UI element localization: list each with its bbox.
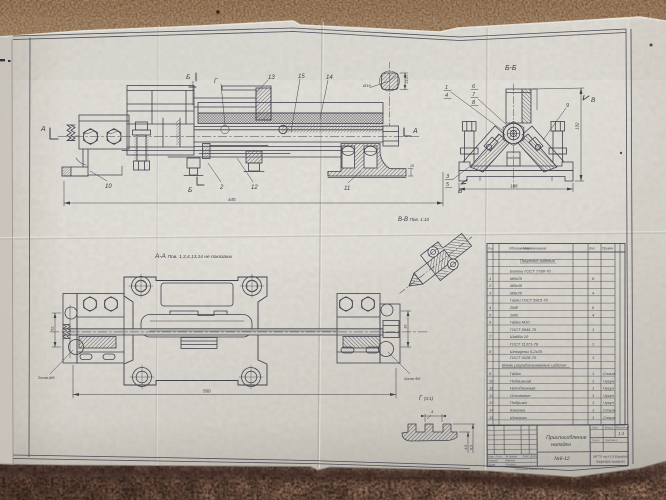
svg-text:Листов 1: Листов 1 xyxy=(604,438,618,442)
svg-text:Ø19: Ø19 xyxy=(362,83,371,88)
svg-text:4,5: 4,5 xyxy=(464,445,468,450)
svg-text:2М6: 2М6 xyxy=(509,312,519,317)
svg-text:1: 1 xyxy=(592,371,594,376)
svg-text:В: В xyxy=(591,97,596,104)
svg-text:A: A xyxy=(40,126,46,133)
svg-text:14: 14 xyxy=(489,408,494,413)
svg-text:Масса: Масса xyxy=(605,425,614,429)
svg-text:148: 148 xyxy=(510,184,518,189)
svg-text:М8х25: М8х25 xyxy=(510,276,523,281)
svg-text:Чугун: Чугун xyxy=(603,400,615,405)
svg-text:15: 15 xyxy=(489,415,494,420)
svg-text:В: В xyxy=(458,188,463,195)
svg-text:52: 52 xyxy=(50,326,55,331)
svg-text:Чугун: Чугун xyxy=(603,378,615,383)
svg-text:10: 10 xyxy=(105,184,112,190)
svg-text:1: 1 xyxy=(592,408,594,413)
svg-text:1: 1 xyxy=(445,85,448,91)
svg-text:Шайба 10: Шайба 10 xyxy=(510,334,529,339)
svg-text:1: 1 xyxy=(592,393,594,398)
svg-text:1: 1 xyxy=(592,400,594,405)
svg-text:2отв.М6: 2отв.М6 xyxy=(37,375,55,380)
svg-text:А-А Пов. 1,3,4,13,14 не показа: А-А Пов. 1,3,4,13,14 не показаны xyxy=(154,253,233,260)
svg-text:1:1: 1:1 xyxy=(618,431,625,436)
svg-text:1: 1 xyxy=(592,386,594,391)
svg-text:2отв.Ф6: 2отв.Ф6 xyxy=(403,376,421,381)
svg-text:1: 1 xyxy=(489,276,491,281)
svg-text:Покупные изделия: Покупные изделия xyxy=(520,258,556,263)
svg-text:Болты ГОСТ 7798-70: Болты ГОСТ 7798-70 xyxy=(510,269,551,274)
svg-text:Б: Б xyxy=(188,187,192,194)
svg-text:ГОСТ 5946-70: ГОСТ 5946-70 xyxy=(510,327,537,332)
svg-text:6,5: 6,5 xyxy=(470,445,474,450)
svg-text:132: 132 xyxy=(575,122,580,130)
svg-text:Примеч.: Примеч. xyxy=(602,247,614,251)
svg-text:№6-12: №6-12 xyxy=(554,456,570,462)
svg-text:Поз: Поз xyxy=(488,247,494,251)
svg-text:13,07: 13,07 xyxy=(405,74,409,84)
svg-text:Дата: Дата xyxy=(529,454,538,458)
svg-text:445: 445 xyxy=(228,197,236,202)
svg-text:Масштаб: Масштаб xyxy=(616,425,630,429)
svg-text:Чугун: Чугун xyxy=(603,393,615,398)
svg-text:ГОСТ 3128-70: ГОСТ 3128-70 xyxy=(510,355,537,360)
svg-text:Сталь: Сталь xyxy=(603,408,616,413)
svg-text:1: 1 xyxy=(592,378,594,383)
svg-text:Пров.: Пров. xyxy=(488,462,496,466)
svg-text:Подвижная: Подвижная xyxy=(510,378,532,383)
svg-text:Наименование: Наименование xyxy=(523,247,547,251)
svg-text:14: 14 xyxy=(326,75,333,81)
svg-text:13: 13 xyxy=(489,400,494,405)
svg-text:Б: Б xyxy=(186,74,190,81)
svg-text:15: 15 xyxy=(410,164,414,168)
svg-text:12: 12 xyxy=(251,185,258,191)
svg-text:9: 9 xyxy=(566,103,569,109)
svg-text:Приспособление: Приспособление xyxy=(546,435,587,441)
svg-text:16: 16 xyxy=(403,324,408,329)
svg-text:Сталь: Сталь xyxy=(603,415,616,420)
svg-text:1: 1 xyxy=(592,327,594,332)
svg-text:13: 13 xyxy=(268,75,275,81)
svg-text:Копировал Формат А1: Копировал Формат А1 xyxy=(515,467,543,471)
svg-text:560: 560 xyxy=(203,389,211,394)
svg-text:МГТУ им.Н.Э.Баумана: МГТУ им.Н.Э.Баумана xyxy=(593,455,628,459)
svg-text:1: 1 xyxy=(592,415,594,420)
svg-text:4: 4 xyxy=(445,93,448,99)
svg-text:Основание: Основание xyxy=(510,393,531,398)
svg-text:Кол.: Кол. xyxy=(589,247,595,251)
svg-text:Качалка: Качалка xyxy=(510,408,526,413)
svg-text:Сталь: Сталь xyxy=(603,371,616,376)
svg-text:Подушка: Подушка xyxy=(510,400,527,405)
svg-text:Вновь разрабатываемые изделия: Вновь разрабатываемые изделия xyxy=(502,363,567,368)
svg-text:2: 2 xyxy=(219,185,224,191)
svg-text:М8х20: М8х20 xyxy=(510,290,523,295)
svg-text:Гайка М10: Гайка М10 xyxy=(510,320,530,325)
svg-text:Штифты 5,2х25: Штифты 5,2х25 xyxy=(510,349,543,354)
svg-text:15: 15 xyxy=(298,74,305,80)
svg-text:Б-Б: Б-Б xyxy=(505,65,517,72)
svg-text:Чугун: Чугун xyxy=(603,386,615,391)
svg-text:12: 12 xyxy=(489,393,494,398)
svg-text:11: 11 xyxy=(344,186,350,192)
svg-text:11: 11 xyxy=(489,386,493,391)
svg-text:Лист: Лист xyxy=(591,438,600,442)
svg-text:наладка: наладка xyxy=(551,442,571,448)
svg-text:М8х45: М8х45 xyxy=(510,283,523,288)
svg-text:A: A xyxy=(412,128,418,135)
svg-text:2М8: 2М8 xyxy=(509,305,519,310)
svg-text:Шпилька: Шпилька xyxy=(510,415,527,420)
svg-text:Неподвижная: Неподвижная xyxy=(510,386,536,391)
svg-text:Гайки ГОСТ 5915-70: Гайки ГОСТ 5915-70 xyxy=(510,298,549,303)
svg-text:1: 1 xyxy=(592,355,594,360)
svg-text:Кафедра графики: Кафедра графики xyxy=(596,460,625,464)
svg-text:1: 1 xyxy=(592,342,594,347)
svg-text:Петров: Петров xyxy=(505,462,516,466)
svg-text:ГОСТ 11371-78: ГОСТ 11371-78 xyxy=(510,342,539,347)
svg-text:Лит.: Лит. xyxy=(591,426,599,430)
svg-text:10: 10 xyxy=(489,378,494,383)
svg-text:Гайка: Гайка xyxy=(510,371,521,376)
svg-text:Подп.: Подп. xyxy=(522,454,530,458)
